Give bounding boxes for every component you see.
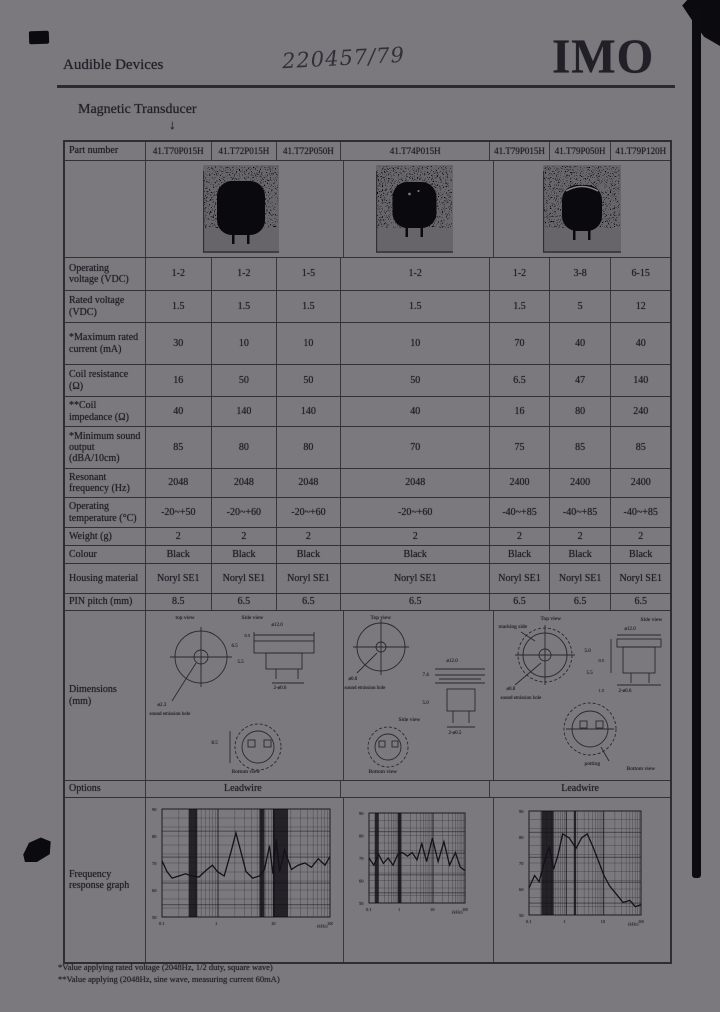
dim-label: 5.0: [585, 649, 591, 655]
spec-table: Part number41.T70P015H41.T72P015H41.T72P…: [63, 140, 672, 964]
svg-text:(kHz): (kHz): [452, 910, 463, 915]
dimensions-label: Dimensions (mm): [65, 611, 145, 780]
svg-text:50: 50: [519, 913, 524, 918]
spec-value-cell: 75: [489, 427, 549, 468]
spec-value-cell: 140: [211, 397, 276, 426]
svg-text:50: 50: [359, 901, 364, 906]
spec-value-cell: 1-2: [145, 258, 212, 290]
photo-row-label: [65, 161, 145, 257]
spec-value-cell: 2400: [549, 469, 611, 497]
table-divider: [493, 611, 494, 780]
svg-text:0.1: 0.1: [526, 919, 532, 924]
spec-value-cell: 140: [610, 365, 670, 396]
svg-text:50: 50: [152, 915, 157, 920]
spec-value-cell: 12: [610, 291, 670, 322]
dim-label: 6.5: [232, 644, 238, 650]
part-number-cell: 41.T79P120H: [610, 142, 670, 160]
table-divider: [343, 798, 344, 962]
dim-label: ø12.0: [625, 627, 636, 633]
spec-value-cell: 16: [145, 365, 212, 396]
dim-label: ø0.8: [349, 677, 358, 683]
options-empty: [340, 781, 489, 797]
spec-value-cell: 1.5: [211, 291, 276, 322]
options-leadwire-left: Leadwire: [145, 781, 341, 797]
spec-row-label: Operating voltage (VDC): [65, 258, 145, 290]
section-title: Audible Devices: [63, 57, 163, 74]
spec-value-cell: 2048: [211, 469, 276, 497]
svg-text:60: 60: [359, 879, 364, 884]
table-divider: [493, 161, 494, 257]
spec-value-cell: 5: [549, 291, 611, 322]
spec-value-cell: 8.5: [145, 594, 212, 610]
svg-text:80: 80: [359, 834, 364, 839]
spec-value-cell: 2: [549, 528, 611, 545]
svg-text:100: 100: [327, 921, 333, 926]
dim-label: Bottom view: [232, 769, 261, 775]
freq-graph: 90807060500.1110100(kHz): [151, 806, 333, 928]
frequency-response-graph: 90807060500.1110100(kHz): [151, 806, 333, 928]
spec-value-cell: 6.5: [211, 594, 276, 610]
spec-value-cell: 40: [340, 397, 489, 426]
spec-value-cell: Black: [340, 546, 489, 563]
spec-value-cell: 85: [549, 427, 611, 468]
spec-row-label: Rated voltage (VDC): [65, 291, 145, 322]
dim-label: ø12.0: [447, 659, 458, 665]
freq-graph-label: Frequency response graph: [65, 798, 145, 962]
dim-label: 0.5: [599, 659, 605, 664]
spec-value-cell: Noryl SE1: [276, 564, 341, 593]
dimensions-panel: top viewSide viewø12.06.50.55.52-ø0.6ø2.…: [146, 611, 343, 780]
dimensions-panel: marking sideTop viewSide viewø12.05.00.5…: [493, 611, 675, 780]
svg-text:1: 1: [215, 921, 217, 926]
dim-label: 0.5: [245, 634, 251, 639]
table-divider: [343, 611, 344, 780]
freq-graph-row: 90807060500.1110100(kHz)90807060500.1110…: [145, 798, 670, 962]
spec-value-cell: Noryl SE1: [489, 564, 549, 593]
spec-value-cell: 80: [211, 427, 276, 468]
spec-row-label: Coil resistance (Ω): [65, 365, 145, 396]
spec-row-label: Housing material: [65, 564, 145, 593]
options-leadwire-right: Leadwire: [489, 781, 670, 797]
svg-text:70: 70: [519, 861, 524, 866]
svg-text:70: 70: [359, 856, 364, 861]
spec-value-cell: 6.5: [549, 594, 611, 610]
spec-value-cell: 85: [610, 427, 670, 468]
dim-label: 2-ø0.6: [274, 686, 287, 692]
spec-value-cell: -20~+50: [145, 498, 212, 527]
spec-value-cell: 6-15: [610, 258, 670, 290]
spec-value-cell: 2048: [145, 469, 212, 497]
scanned-datasheet-page: Audible Devices 220457/79 IMO Magnetic T…: [0, 0, 720, 1012]
dimensions-panel: Top viewø0.8sound emission holeø12.07.45…: [343, 611, 493, 780]
svg-text:60: 60: [152, 888, 157, 893]
svg-text:(kHz): (kHz): [317, 924, 328, 929]
spec-value-cell: 2: [340, 528, 489, 545]
part-number-cell: 41.T79P050H: [549, 142, 611, 160]
dim-label: Side view: [641, 617, 663, 623]
spec-value-cell: 1-5: [276, 258, 341, 290]
product-photo-row: [145, 161, 670, 257]
spec-value-cell: 2: [276, 528, 341, 545]
freq-graph: 90807060500.1110100(kHz): [358, 810, 468, 914]
spec-value-cell: 3-8: [549, 258, 611, 290]
spec-value-cell: 47: [549, 365, 611, 396]
options-label: Options: [65, 781, 145, 797]
part-number-cell: 41.T74P015H: [340, 142, 489, 160]
svg-text:90: 90: [359, 811, 364, 816]
dim-label: ø0.8: [507, 687, 516, 693]
dim-label: 8.5: [212, 741, 218, 747]
spec-value-cell: 6.5: [489, 365, 549, 396]
spec-value-cell: 10: [276, 323, 341, 364]
spec-value-cell: 2400: [610, 469, 670, 497]
svg-text:100: 100: [462, 907, 468, 912]
svg-text:1: 1: [563, 919, 565, 924]
spec-value-cell: 40: [549, 323, 611, 364]
svg-text:10: 10: [271, 921, 276, 926]
spec-value-cell: 80: [549, 397, 611, 426]
dim-label: 2-ø0.6: [619, 689, 632, 695]
dim-label: sound emission hole: [501, 696, 542, 702]
header-rule: [57, 85, 675, 88]
dim-label: 5.0: [423, 701, 429, 707]
product-photo-image: [203, 165, 279, 253]
spec-value-cell: -20~+60: [211, 498, 276, 527]
dim-label: Side view: [242, 615, 264, 621]
part-number-cell: 41.T79P015H: [489, 142, 549, 160]
spec-value-cell: Noryl SE1: [145, 564, 212, 593]
spec-value-cell: Noryl SE1: [549, 564, 611, 593]
dim-label: 5.5: [587, 671, 593, 677]
spec-value-cell: -40~+85: [610, 498, 670, 527]
spec-row-label: Operating temperature (°C): [65, 498, 145, 527]
spec-value-cell: -20~+60: [340, 498, 489, 527]
part-number-cell: 41.T72P015H: [211, 142, 276, 160]
spec-row-label: *Maximum rated current (mA): [65, 323, 145, 364]
spec-value-cell: 2: [145, 528, 212, 545]
dim-label: 7.4: [423, 673, 429, 679]
dim-label: Top view: [371, 615, 392, 621]
spec-value-cell: 50: [340, 365, 489, 396]
spec-value-cell: 2400: [489, 469, 549, 497]
spec-value-cell: 10: [211, 323, 276, 364]
table-divider: [493, 798, 494, 962]
spec-row-label: Weight (g): [65, 528, 145, 545]
product-photo: [203, 165, 279, 253]
dim-label: potting: [585, 761, 601, 767]
svg-text:80: 80: [519, 835, 524, 840]
part-number-cell: 41.T72P050H: [276, 142, 341, 160]
svg-text:0.1: 0.1: [366, 907, 372, 912]
spec-value-cell: 50: [211, 365, 276, 396]
svg-text:0.1: 0.1: [159, 921, 165, 926]
spec-value-cell: 2: [610, 528, 670, 545]
svg-text:80: 80: [152, 834, 157, 839]
spec-row-label: **Coil impedance (Ω): [65, 397, 145, 426]
handwritten-number: 220457/79: [281, 43, 405, 73]
product-photo-image: [376, 165, 453, 253]
spec-value-cell: 6.5: [276, 594, 341, 610]
dim-label: 2-ø0.5: [449, 731, 462, 737]
part-number-cell: 41.T70P015H: [145, 142, 212, 160]
spec-value-cell: 80: [276, 427, 341, 468]
spec-value-cell: Noryl SE1: [211, 564, 276, 593]
spec-value-cell: 50: [276, 365, 341, 396]
dim-label: marking side: [499, 624, 528, 630]
spec-value-cell: 1.5: [145, 291, 212, 322]
spec-value-cell: 2: [211, 528, 276, 545]
spec-value-cell: 40: [610, 323, 670, 364]
product-photo: [376, 165, 453, 253]
spec-value-cell: 2: [489, 528, 549, 545]
scan-mark-top-left: [29, 31, 49, 45]
frequency-response-graph: 90807060500.1110100(kHz): [358, 810, 468, 914]
spec-value-cell: -20~+60: [276, 498, 341, 527]
dim-label: ø12.0: [272, 623, 283, 629]
spec-value-cell: 1.5: [276, 291, 341, 322]
footnote-1: *Value applying rated voltage (2048Hz, 1…: [58, 962, 273, 972]
svg-text:1: 1: [398, 907, 400, 912]
svg-text:90: 90: [519, 809, 524, 814]
spec-value-cell: 70: [489, 323, 549, 364]
svg-text:(kHz): (kHz): [628, 922, 639, 927]
dim-label: Bottom view: [627, 766, 656, 772]
spec-value-cell: Black: [489, 546, 549, 563]
dim-label: 1.5: [599, 689, 605, 694]
spec-value-cell: 1-2: [211, 258, 276, 290]
ink-smudge: [18, 834, 54, 865]
svg-text:100: 100: [638, 919, 644, 924]
dim-label: ø2.3: [158, 703, 167, 709]
spec-row-label: *Minimum sound output (dBA/10cm): [65, 427, 145, 468]
svg-text:70: 70: [152, 861, 157, 866]
spec-value-cell: 1.5: [340, 291, 489, 322]
svg-text:90: 90: [152, 807, 157, 812]
spec-value-cell: 2048: [340, 469, 489, 497]
spec-value-cell: 6.5: [489, 594, 549, 610]
spec-row-label: Colour: [65, 546, 145, 563]
product-photo-image: [543, 165, 621, 253]
frequency-response-graph: 90807060500.1110100(kHz): [518, 808, 644, 926]
dim-label: sound emission hole: [345, 686, 386, 692]
freq-graph: 90807060500.1110100(kHz): [518, 808, 644, 926]
spec-value-cell: 6.5: [340, 594, 489, 610]
svg-text:10: 10: [600, 919, 605, 924]
spec-value-cell: Black: [145, 546, 212, 563]
spec-value-cell: Black: [610, 546, 670, 563]
dim-label: Bottom view: [369, 769, 398, 775]
dim-label: top view: [176, 615, 195, 621]
spec-value-cell: 85: [145, 427, 212, 468]
spec-value-cell: Noryl SE1: [610, 564, 670, 593]
dimension-drawing-2: [343, 611, 493, 781]
part-number-label: Part number: [65, 142, 145, 160]
spec-value-cell: Noryl SE1: [340, 564, 489, 593]
spec-value-cell: 16: [489, 397, 549, 426]
dim-label: sound emission hole: [150, 712, 191, 718]
spec-value-cell: 1-2: [340, 258, 489, 290]
spec-value-cell: -40~+85: [489, 498, 549, 527]
spec-value-cell: Black: [276, 546, 341, 563]
dim-label: 5.5: [238, 660, 244, 666]
spec-value-cell: 2048: [276, 469, 341, 497]
spec-value-cell: 40: [145, 397, 212, 426]
product-title: Magnetic Transducer: [78, 102, 197, 118]
svg-text:10: 10: [430, 907, 435, 912]
spec-value-cell: 10: [340, 323, 489, 364]
dim-label: Top view: [541, 616, 562, 622]
spec-value-cell: Black: [211, 546, 276, 563]
spec-value-cell: -40~+85: [549, 498, 611, 527]
spec-value-cell: 6.5: [610, 594, 670, 610]
spec-value-cell: 240: [610, 397, 670, 426]
table-divider: [343, 161, 344, 257]
dim-label: Side view: [399, 717, 421, 723]
spec-value-cell: 30: [145, 323, 212, 364]
brand-logo: IMO: [552, 29, 654, 85]
dimensions-row: top viewSide viewø12.06.50.55.52-ø0.6ø2.…: [145, 611, 670, 780]
spec-value-cell: Black: [549, 546, 611, 563]
spec-value-cell: 140: [276, 397, 341, 426]
svg-text:60: 60: [519, 887, 524, 892]
spec-value-cell: 1-2: [489, 258, 549, 290]
product-photo: [543, 165, 621, 253]
spec-row-label: Resonant frequency (Hz): [65, 469, 145, 497]
spec-value-cell: 70: [340, 427, 489, 468]
page-edge-bar: [692, 6, 701, 878]
down-arrow-icon: ↓: [169, 117, 176, 133]
spec-value-cell: 1.5: [489, 291, 549, 322]
spec-row-label: PIN pitch (mm): [65, 594, 145, 610]
footnote-2: **Value applying (2048Hz, sine wave, mea…: [58, 974, 280, 984]
